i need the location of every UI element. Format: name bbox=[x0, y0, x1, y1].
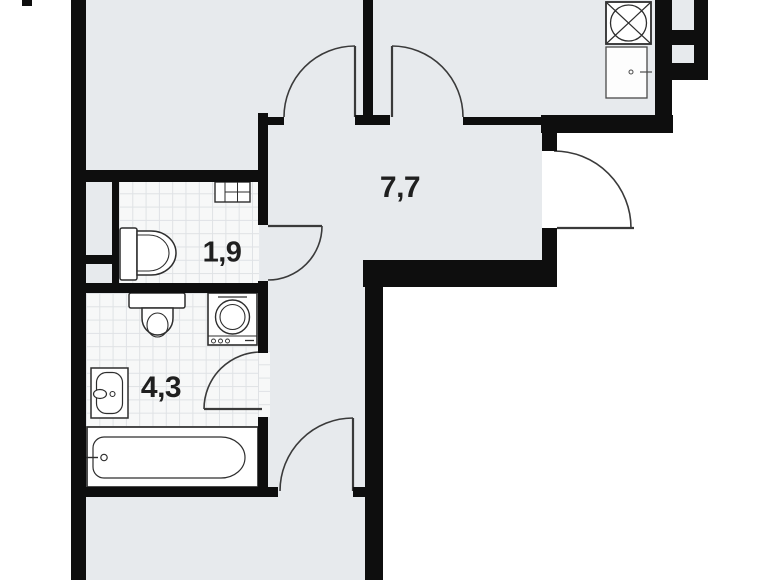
wall-neighbor-column bbox=[694, 0, 708, 80]
shaft-upper bbox=[86, 181, 112, 255]
wall-kitchen-bottom-thick bbox=[541, 115, 673, 133]
neighbor-shaft-notch bbox=[672, 45, 694, 63]
wall-corridor-bottom bbox=[363, 260, 557, 287]
bathroom-doorway-tiles bbox=[258, 351, 270, 417]
hallway-strip-floor bbox=[258, 260, 382, 497]
shaft-lower bbox=[86, 264, 112, 283]
wall-shaft-vertical bbox=[112, 180, 119, 283]
entrance-doorway-threshold bbox=[542, 151, 557, 228]
wall-shaft-horizontal bbox=[86, 255, 119, 264]
wall-hall-right bbox=[365, 260, 383, 580]
neighbor-strip bbox=[672, 0, 694, 30]
wall-neighbor-band-top bbox=[672, 30, 694, 45]
wall-left-exterior bbox=[71, 0, 86, 580]
wall-wc-bath-divider bbox=[86, 283, 268, 293]
wall-bathroom-bottom bbox=[86, 487, 278, 497]
wall-entrance-top-post bbox=[542, 133, 557, 151]
bottom-room-floor bbox=[86, 497, 383, 580]
floor-plan-canvas: 7,7 1,9 4,3 bbox=[0, 0, 780, 580]
bathroom-area-label: 4,3 bbox=[141, 371, 181, 405]
wall-corner-fragment bbox=[22, 0, 32, 6]
wall-kitchen-divider bbox=[363, 0, 373, 125]
hallway-area-label: 7,7 bbox=[380, 171, 420, 205]
wall-thin-right-segment bbox=[463, 117, 543, 125]
wall-divider-tip bbox=[355, 115, 390, 125]
wall-thin-left-segment bbox=[258, 117, 284, 125]
wc-area-label: 1,9 bbox=[203, 237, 242, 270]
wall-kitchen-right bbox=[655, 0, 672, 133]
wall-vertical-upper bbox=[258, 113, 268, 225]
wall-vertical-lower bbox=[258, 417, 268, 487]
wall-entrance-bottom-post bbox=[542, 228, 557, 268]
entrance-door-arc bbox=[554, 151, 634, 228]
